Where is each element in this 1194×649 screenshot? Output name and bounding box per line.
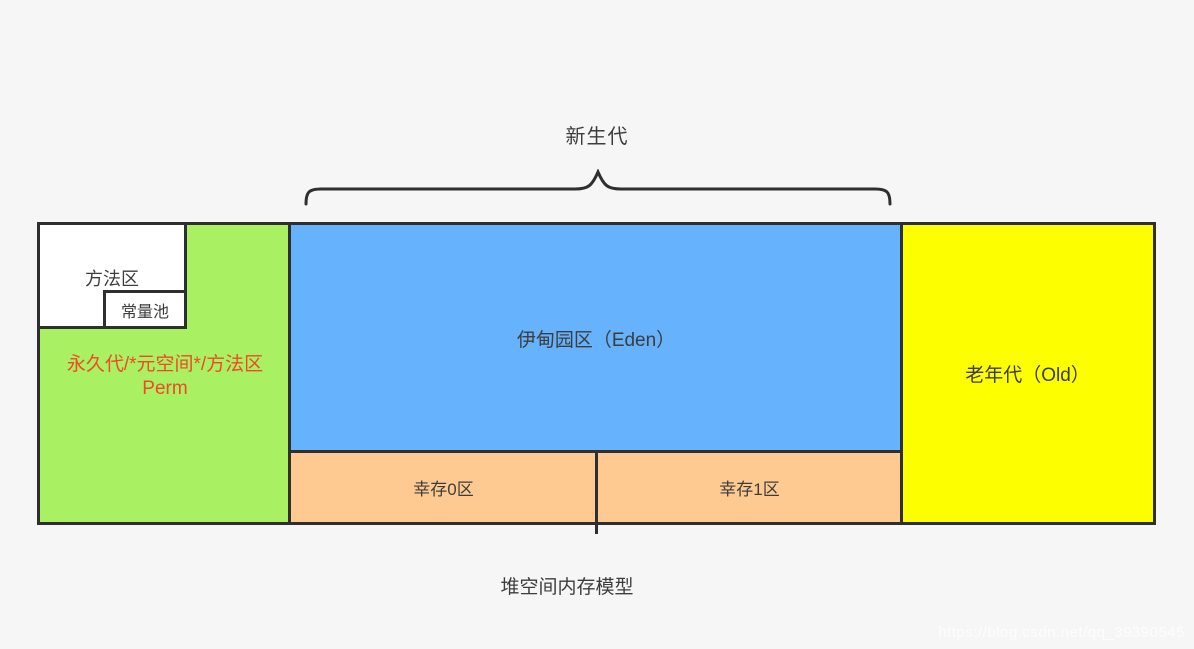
diagram-caption: 堆空间内存模型: [0, 572, 1134, 599]
heap-box: 伊甸园区（Eden） 幸存0区 幸存1区 老年代（Old） 方法区 常量池 永久…: [37, 222, 1156, 525]
method-area-label: 方法区: [40, 265, 184, 291]
perm-label-line1: 永久代/*元空间*/方法区: [40, 353, 290, 377]
survivor0-region: 幸存0区: [290, 452, 597, 522]
survivor1-region: 幸存1区: [597, 452, 902, 522]
constant-pool-label: 常量池: [121, 298, 169, 322]
perm-label-line2: Perm: [40, 377, 290, 401]
old-generation-label: 老年代（Old）: [965, 360, 1090, 387]
new-generation-title: 新生代: [0, 120, 1194, 149]
constant-pool-box: 常量池: [103, 290, 187, 329]
eden-region: 伊甸园区（Eden）: [290, 225, 902, 452]
old-generation-region: 老年代（Old）: [902, 225, 1153, 522]
survivor1-label: 幸存1区: [719, 475, 779, 500]
divider-eden-old: [900, 225, 903, 522]
divider-tick-below: [595, 525, 598, 534]
heap-memory-diagram: 新生代 伊甸园区（Eden） 幸存0区 幸存1区 老年代（Old） 方法区 常量…: [0, 0, 1194, 649]
csdn-watermark: https://blog.csdn.net/qq_39390545: [938, 624, 1185, 641]
divider-survivor0-survivor1: [595, 450, 598, 522]
perm-generation-label: 永久代/*元空间*/方法区 Perm: [40, 353, 290, 401]
new-generation-brace: [303, 169, 893, 207]
survivor0-label: 幸存0区: [413, 475, 473, 500]
eden-label: 伊甸园区（Eden）: [517, 325, 675, 352]
